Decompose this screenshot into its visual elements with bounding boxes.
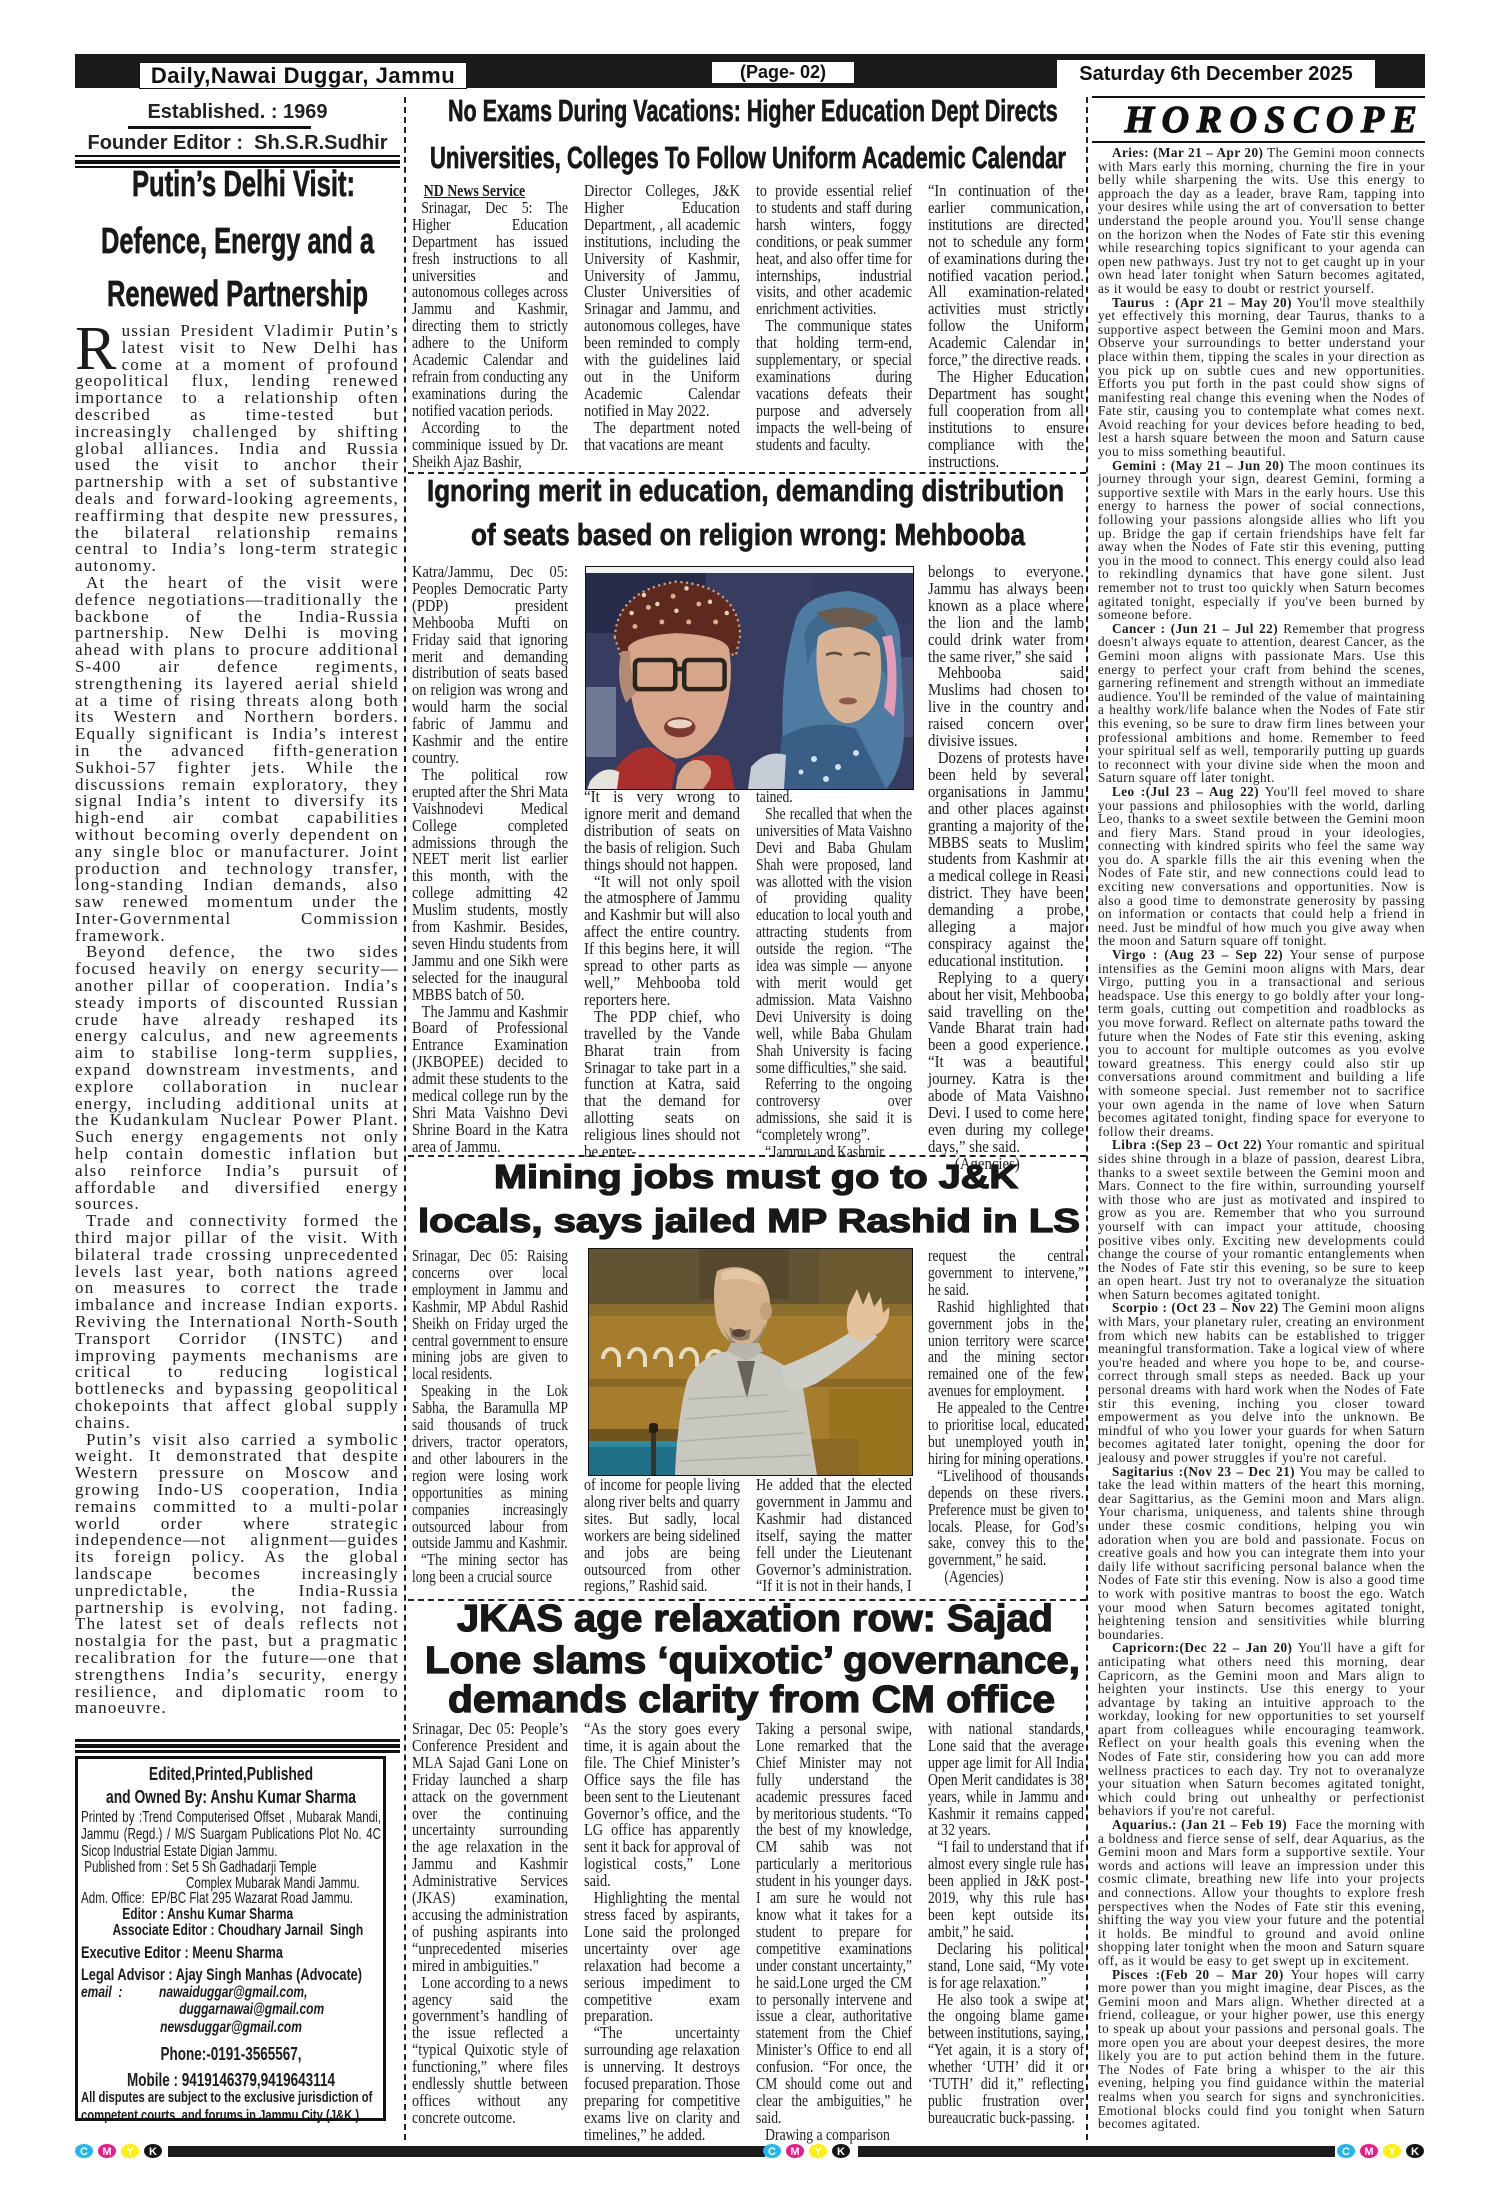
svg-text:C: C [1342,2146,1350,2158]
svg-text:M: M [102,2146,111,2158]
svg-text:M: M [1364,2146,1373,2158]
svg-text:Y: Y [126,2146,134,2158]
svg-text:K: K [149,2146,157,2158]
svg-text:M: M [790,2146,799,2158]
svg-text:K: K [1411,2146,1419,2158]
svg-text:C: C [768,2146,776,2158]
svg-text:C: C [80,2146,88,2158]
svg-text:K: K [837,2146,845,2158]
svg-text:Y: Y [814,2146,822,2158]
svg-text:Y: Y [1388,2146,1396,2158]
